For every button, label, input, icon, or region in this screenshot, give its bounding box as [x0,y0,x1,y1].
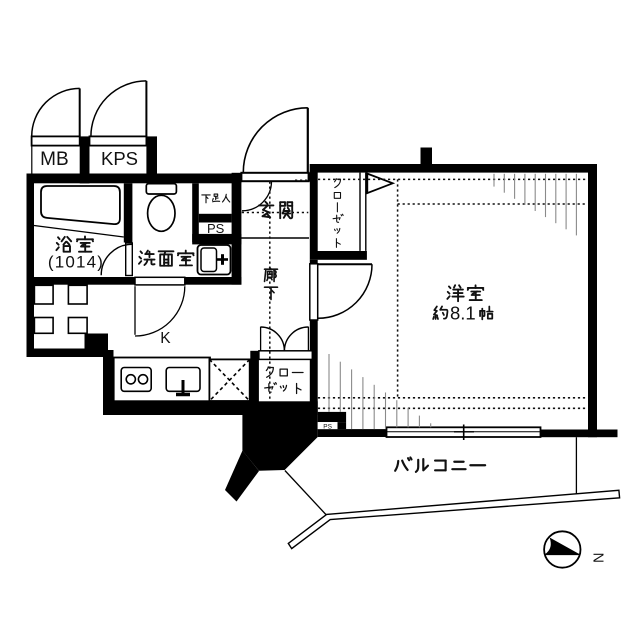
svg-text:(1014): (1014) [48,253,104,272]
svg-text:MB: MB [40,149,69,170]
svg-text:PS: PS [323,423,332,430]
svg-text:KPS: KPS [101,148,138,169]
svg-text:8.1: 8.1 [450,302,476,323]
svg-text:PS: PS [207,221,225,236]
svg-text:K: K [160,330,171,347]
svg-text:N: N [590,553,606,563]
